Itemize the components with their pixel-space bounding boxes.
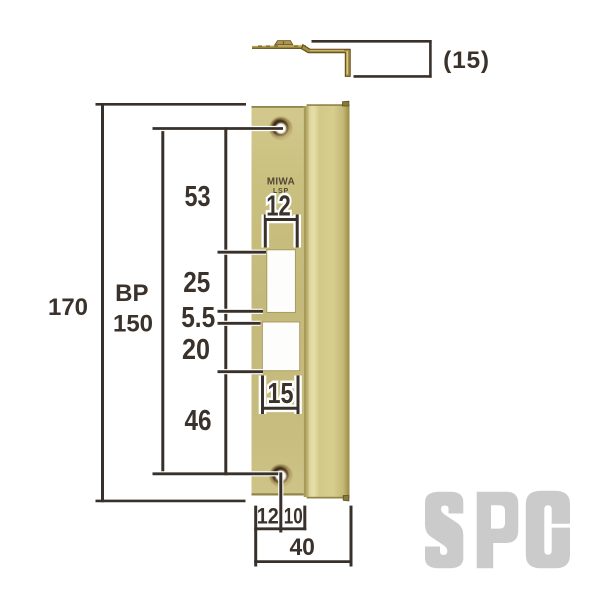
svg-text:10: 10 (284, 504, 303, 529)
svg-text:15: 15 (268, 378, 294, 410)
svg-text:40: 40 (289, 534, 315, 561)
svg-text:12: 12 (257, 504, 279, 529)
svg-text:46: 46 (185, 405, 212, 437)
svg-text:5.5: 5.5 (181, 302, 215, 334)
svg-text:BP: BP (115, 280, 148, 307)
svg-text:20: 20 (182, 334, 210, 366)
svg-text:MIWA: MIWA (267, 177, 295, 188)
svg-text:12: 12 (266, 190, 291, 222)
svg-text:53: 53 (185, 181, 211, 213)
svg-text:(15): (15) (443, 47, 490, 74)
svg-text:150: 150 (113, 310, 153, 337)
svg-text:25: 25 (183, 267, 210, 299)
svg-text:170: 170 (48, 294, 88, 321)
